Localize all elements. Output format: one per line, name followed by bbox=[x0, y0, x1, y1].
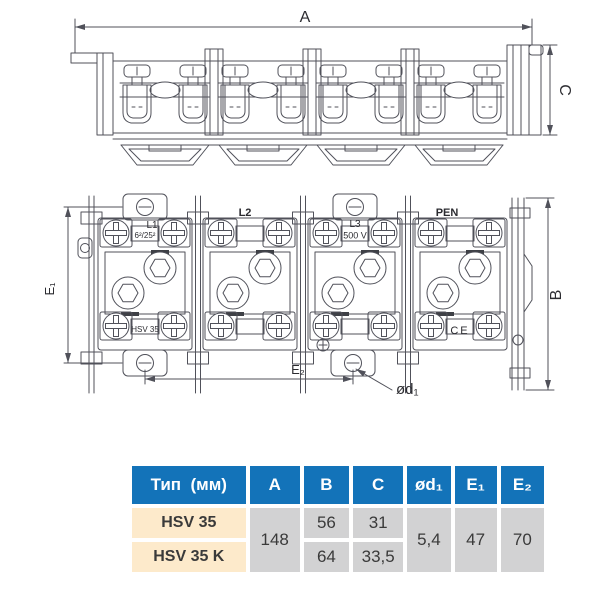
col-header-e2: E₂ bbox=[501, 466, 544, 504]
front-view-drawing: L1 L2 L3 PEN 6²/25² 500 V HSV 35 CE E₁ B bbox=[40, 192, 570, 402]
label-l1: L1 bbox=[146, 220, 158, 231]
dimension-e2 bbox=[145, 370, 353, 384]
cell-a-shared: 148 bbox=[250, 508, 300, 572]
marking-wire-range: 6²/25² bbox=[135, 231, 156, 240]
partition-wall bbox=[401, 49, 419, 135]
dim-a-label: A bbox=[300, 9, 311, 26]
cell-type-hsv35k: HSV 35 K bbox=[132, 542, 246, 572]
col-header-e1: E₁ bbox=[455, 466, 497, 504]
marking-type: HSV 35 bbox=[131, 325, 159, 334]
side-view-drawing: A bbox=[55, 5, 565, 185]
cell-e2-shared: 70 bbox=[501, 508, 544, 572]
side-module-2 bbox=[218, 65, 308, 123]
terminal-block-side-profile bbox=[71, 45, 543, 165]
label-l3: L3 bbox=[349, 219, 361, 230]
dim-e1-label: E₁ bbox=[42, 282, 57, 296]
page: A bbox=[0, 0, 600, 600]
partition-wall bbox=[303, 49, 321, 135]
side-module-4 bbox=[414, 65, 504, 123]
cell-c-hsv35k: 33,5 bbox=[353, 542, 403, 572]
cell-b-hsv35k: 64 bbox=[304, 542, 349, 572]
mounting-foot bbox=[317, 145, 405, 165]
partition-wall bbox=[205, 49, 223, 135]
end-plate bbox=[507, 45, 541, 135]
col-header-b: B bbox=[304, 466, 349, 504]
mounting-foot bbox=[219, 145, 307, 165]
mounting-foot bbox=[121, 145, 209, 165]
col-header-type: Тип (мм) bbox=[132, 466, 246, 504]
dim-e2-label: E₂ bbox=[291, 362, 305, 377]
mounting-tab-top-l3 bbox=[333, 194, 377, 220]
table-header-row: Тип (мм) A B C ød₁ E₁ E₂ bbox=[132, 466, 544, 504]
cell-e1-shared: 47 bbox=[455, 508, 497, 572]
cell-c-hsv35: 31 bbox=[353, 508, 403, 538]
dimension-c bbox=[543, 45, 557, 135]
table-row-hsv35: HSV 35 148 56 31 5,4 47 70 bbox=[132, 508, 544, 538]
marking-voltage: 500 V bbox=[343, 231, 367, 241]
small-screw bbox=[317, 339, 329, 351]
mounting-foot bbox=[415, 145, 503, 165]
col-header-a: A bbox=[250, 466, 300, 504]
end-bracket bbox=[510, 198, 532, 390]
ce-mark: CE bbox=[450, 325, 469, 337]
dim-d1-label: ød₁ bbox=[396, 381, 419, 398]
label-l2: L2 bbox=[239, 207, 252, 219]
cell-type-hsv35: HSV 35 bbox=[132, 508, 246, 538]
module-l2 bbox=[203, 218, 297, 350]
dimensions-table: Тип (мм) A B C ød₁ E₁ E₂ HSV 35 148 56 3… bbox=[128, 462, 548, 576]
side-module-1 bbox=[120, 65, 210, 123]
col-header-c: C bbox=[353, 466, 403, 504]
dim-b-label: B bbox=[548, 290, 565, 301]
cell-b-hsv35: 56 bbox=[304, 508, 349, 538]
col-header-d1: ød₁ bbox=[407, 466, 450, 504]
cell-d1-shared: 5,4 bbox=[407, 508, 450, 572]
mounting-tab-top-l1 bbox=[123, 194, 167, 220]
label-pen: PEN bbox=[436, 207, 459, 219]
dim-c-label: C bbox=[556, 84, 573, 96]
side-ear bbox=[78, 238, 92, 258]
side-module-3 bbox=[316, 65, 406, 123]
